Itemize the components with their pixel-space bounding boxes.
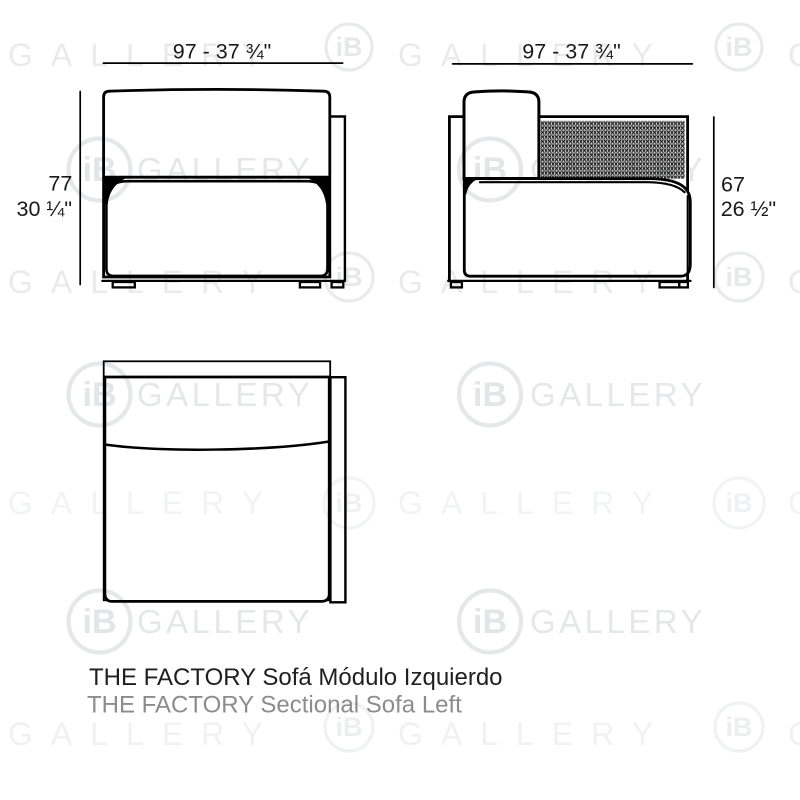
svg-text:iB: iB bbox=[726, 712, 753, 742]
svg-text:GALLERY: GALLERY bbox=[530, 603, 706, 640]
svg-text:GALLERY: GALLERY bbox=[8, 716, 281, 752]
svg-text:GALLERY: GALLERY bbox=[398, 37, 671, 73]
svg-text:iB: iB bbox=[473, 603, 507, 641]
svg-text:GALLERY: GALLERY bbox=[530, 151, 706, 188]
svg-text:GALLERY: GALLERY bbox=[398, 485, 671, 521]
svg-text:GALLERY: GALLERY bbox=[530, 376, 706, 413]
svg-text:THE FACTORY Sofá Módulo Izquie: THE FACTORY Sofá Módulo Izquierdo bbox=[89, 664, 503, 691]
svg-text:GALLERY: GALLERY bbox=[8, 485, 281, 521]
svg-text:iB: iB bbox=[726, 488, 753, 518]
svg-text:G: G bbox=[788, 37, 800, 73]
svg-text:iB: iB bbox=[83, 603, 117, 641]
svg-text:GALLERY: GALLERY bbox=[8, 264, 281, 300]
svg-text:G: G bbox=[788, 485, 800, 521]
svg-text:iB: iB bbox=[336, 262, 363, 292]
svg-text:GALLERY: GALLERY bbox=[398, 264, 671, 300]
svg-text:G: G bbox=[788, 264, 800, 300]
svg-text:GALLERY: GALLERY bbox=[8, 37, 281, 73]
svg-text:iB: iB bbox=[336, 488, 363, 518]
svg-text:GALLERY: GALLERY bbox=[137, 376, 313, 413]
svg-text:GALLERY: GALLERY bbox=[137, 151, 313, 188]
svg-text:iB: iB bbox=[336, 712, 363, 742]
svg-text:THE FACTORY Sectional Sofa Lef: THE FACTORY Sectional Sofa Left bbox=[87, 691, 462, 718]
svg-text:GALLERY: GALLERY bbox=[137, 603, 313, 640]
svg-text:iB: iB bbox=[473, 151, 507, 189]
svg-text:26 ½": 26 ½" bbox=[721, 197, 776, 221]
svg-text:67: 67 bbox=[721, 172, 745, 196]
svg-text:GALLERY: GALLERY bbox=[398, 716, 671, 752]
svg-text:iB: iB bbox=[726, 262, 753, 292]
svg-text:iB: iB bbox=[336, 32, 363, 62]
svg-text:iB: iB bbox=[83, 376, 117, 414]
svg-text:G: G bbox=[788, 716, 800, 752]
svg-text:iB: iB bbox=[726, 32, 753, 62]
svg-text:iB: iB bbox=[473, 376, 507, 414]
svg-text:30 ¼": 30 ¼" bbox=[17, 197, 72, 221]
svg-text:iB: iB bbox=[83, 151, 117, 189]
